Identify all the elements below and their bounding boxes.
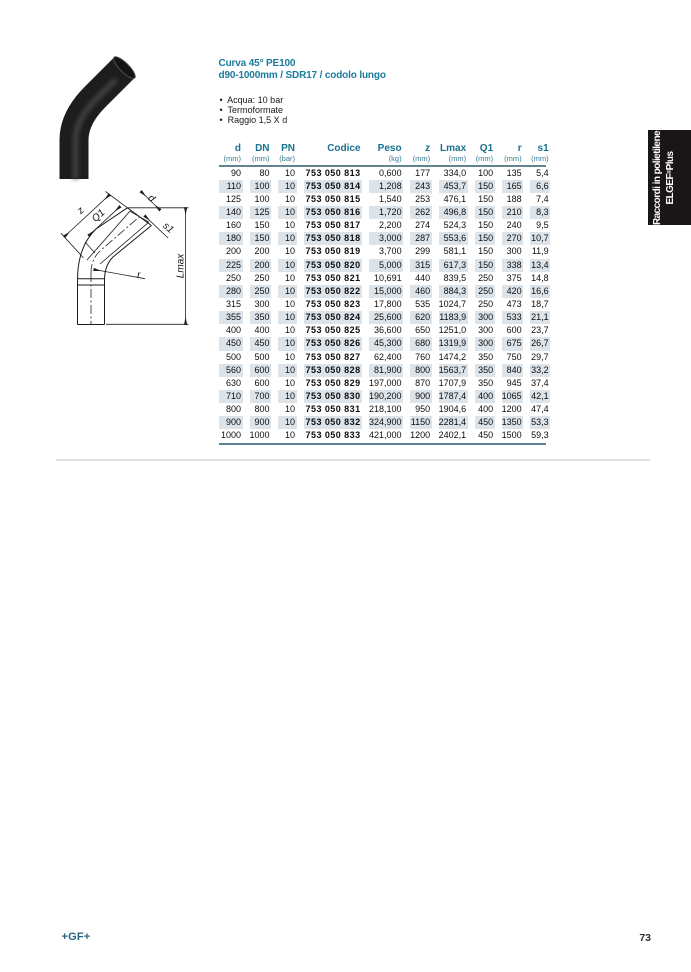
svg-text:s1: s1 [160, 221, 175, 236]
svg-text:Lmax: Lmax [175, 253, 186, 278]
svg-text:z: z [75, 205, 87, 217]
svg-text:d: d [145, 193, 157, 205]
svg-text:r: r [137, 270, 141, 281]
